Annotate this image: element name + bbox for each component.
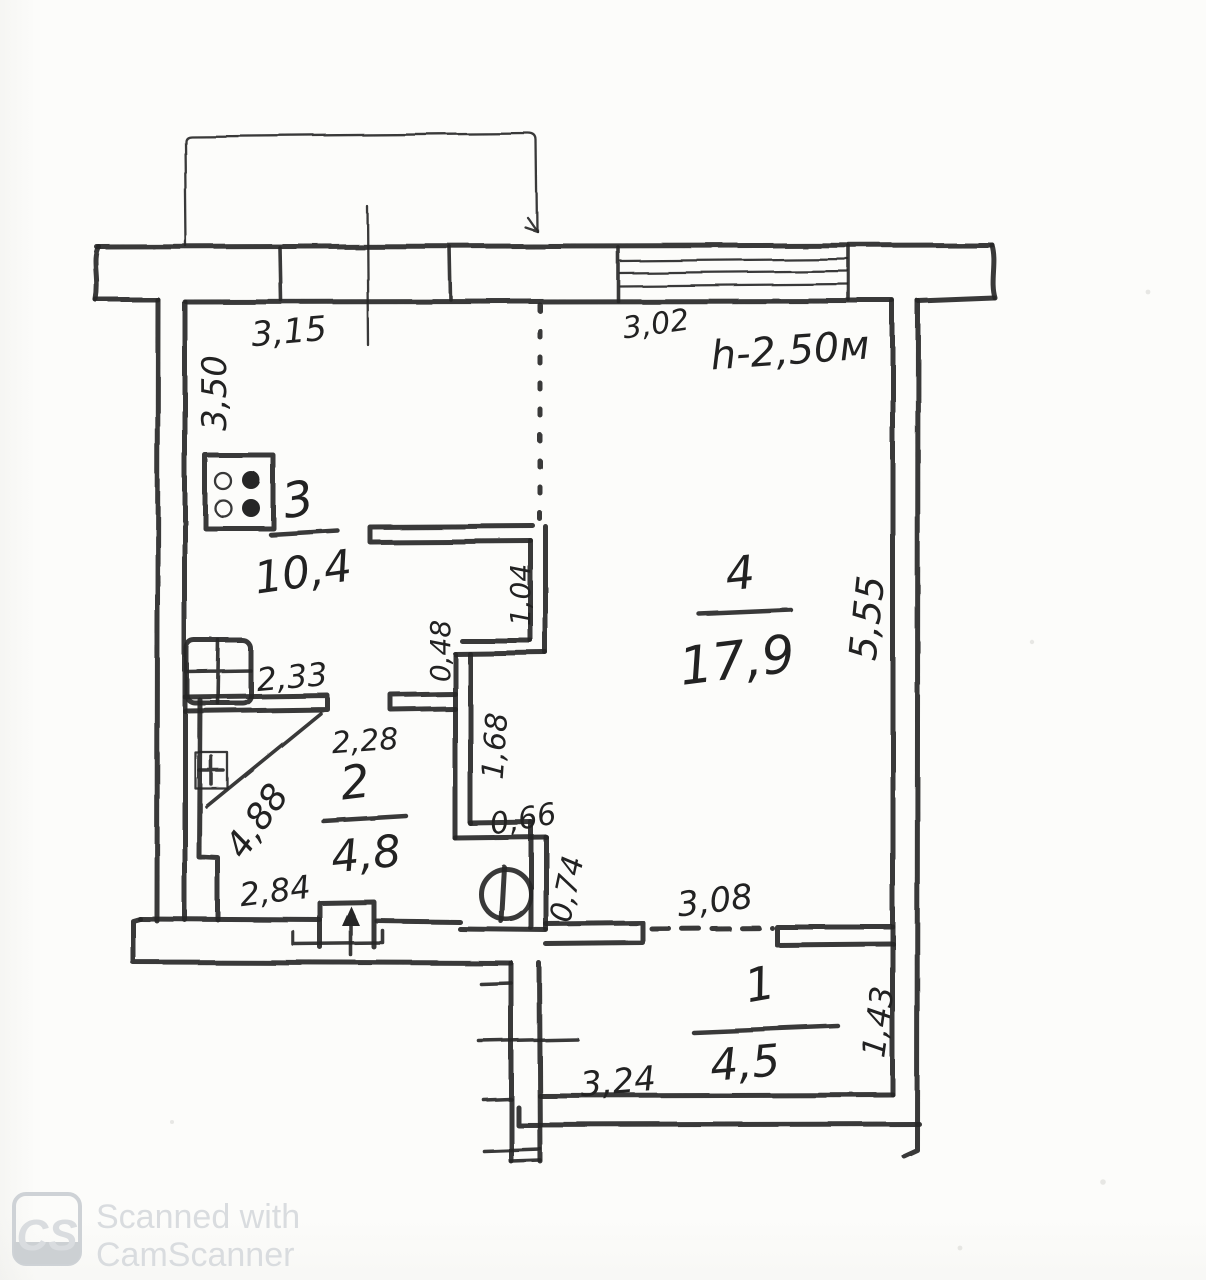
dim-wc-right: 0,74 bbox=[543, 853, 591, 926]
dim-top-right: 3,02 bbox=[621, 303, 692, 347]
room3-area: 10,4 bbox=[251, 540, 355, 604]
room1-top-wall-right bbox=[777, 927, 893, 945]
room4-number: 4 bbox=[723, 545, 758, 602]
dim-hall-diagonal: 4,88 bbox=[218, 777, 298, 866]
room1-area: 4,5 bbox=[708, 1035, 782, 1092]
top-wall-joints bbox=[280, 246, 849, 301]
scan-speckles bbox=[170, 290, 1150, 1251]
dim-wc-left: 1,68 bbox=[476, 711, 516, 780]
dim-hall-bottom: 2,84 bbox=[237, 868, 312, 914]
room4-area: 17,9 bbox=[676, 624, 798, 698]
door-threshold bbox=[293, 931, 383, 944]
room1-fraction-line bbox=[693, 1026, 838, 1032]
right-wall bbox=[893, 301, 918, 1156]
hall-left-inner-wall bbox=[199, 700, 218, 920]
room1-number: 1 bbox=[741, 955, 779, 1013]
room2-fraction-line bbox=[323, 816, 406, 821]
dim-room1-bottom: 3,24 bbox=[579, 1059, 658, 1105]
room1-top-wall-left bbox=[546, 923, 643, 944]
toilet-icon bbox=[481, 869, 531, 919]
stove-burner-2 bbox=[215, 500, 231, 516]
camscanner-logo-text: CS bbox=[16, 1211, 77, 1260]
room1-opening-dashed bbox=[652, 928, 772, 929]
dim-duct-step: 0,48 bbox=[424, 620, 457, 682]
room2-number: 2 bbox=[337, 753, 373, 810]
watermark-line2: CamScanner bbox=[96, 1236, 294, 1274]
entry-arrow-head bbox=[342, 906, 360, 926]
dim-top-left: 3,15 bbox=[250, 309, 329, 355]
stove-burner-1 bbox=[215, 473, 231, 489]
room3-number: 3 bbox=[278, 470, 318, 530]
stove-burner-3 bbox=[242, 471, 260, 489]
camscanner-watermark: CS Scanned with CamScanner bbox=[14, 1194, 300, 1274]
stove-burner-4 bbox=[242, 499, 260, 517]
balcony-end-tick bbox=[525, 218, 537, 231]
dim-kitchen-bottom: 2,33 bbox=[255, 655, 329, 699]
top-wall-right-end bbox=[992, 245, 995, 298]
top-wall-outer-edge bbox=[97, 245, 992, 247]
wc-left-wall bbox=[455, 654, 470, 838]
balcony-outline bbox=[185, 133, 537, 246]
room2-area: 4,8 bbox=[329, 825, 404, 883]
top-wall-left-end bbox=[96, 247, 99, 300]
section-line bbox=[367, 206, 368, 345]
window bbox=[620, 259, 848, 286]
ceiling-height-note: h-2,50м bbox=[709, 323, 871, 380]
dim-kitchen-left: 3,50 bbox=[195, 355, 235, 431]
left-wall bbox=[157, 300, 185, 921]
sink-cross bbox=[187, 641, 251, 703]
top-wall-bottom-right bbox=[918, 298, 994, 301]
top-wall-bottom-main bbox=[186, 301, 893, 302]
labels: 3,15 3,02 h-2,50м 3,50 3 10,4 2,33 1,04 … bbox=[195, 303, 902, 1106]
watermark-line1: Scanned with bbox=[96, 1198, 300, 1236]
dim-room4-right: 5,55 bbox=[841, 574, 894, 663]
scanned-floor-plan-page: 3,15 3,02 h-2,50м 3,50 3 10,4 2,33 1,04 … bbox=[0, 0, 1206, 1280]
toilet-line bbox=[501, 867, 504, 921]
stove-icon bbox=[205, 455, 273, 528]
dim-room1-opening: 3,08 bbox=[675, 877, 755, 926]
dim-wc-step: 0,66 bbox=[487, 796, 559, 842]
stair-wall bbox=[511, 963, 540, 1161]
floor-plan-drawing: 3,15 3,02 h-2,50м 3,50 3 10,4 2,33 1,04 … bbox=[0, 0, 1206, 1280]
dim-duct-right: 1,04 bbox=[504, 564, 537, 626]
room4-fraction-line bbox=[699, 610, 791, 614]
stair-wall-hatches bbox=[479, 983, 577, 1161]
hall-plus-icon bbox=[199, 756, 223, 784]
duct-top-wall bbox=[370, 526, 533, 542]
room1-bottom-wall bbox=[518, 1095, 919, 1125]
room3-fraction-line bbox=[270, 530, 337, 534]
